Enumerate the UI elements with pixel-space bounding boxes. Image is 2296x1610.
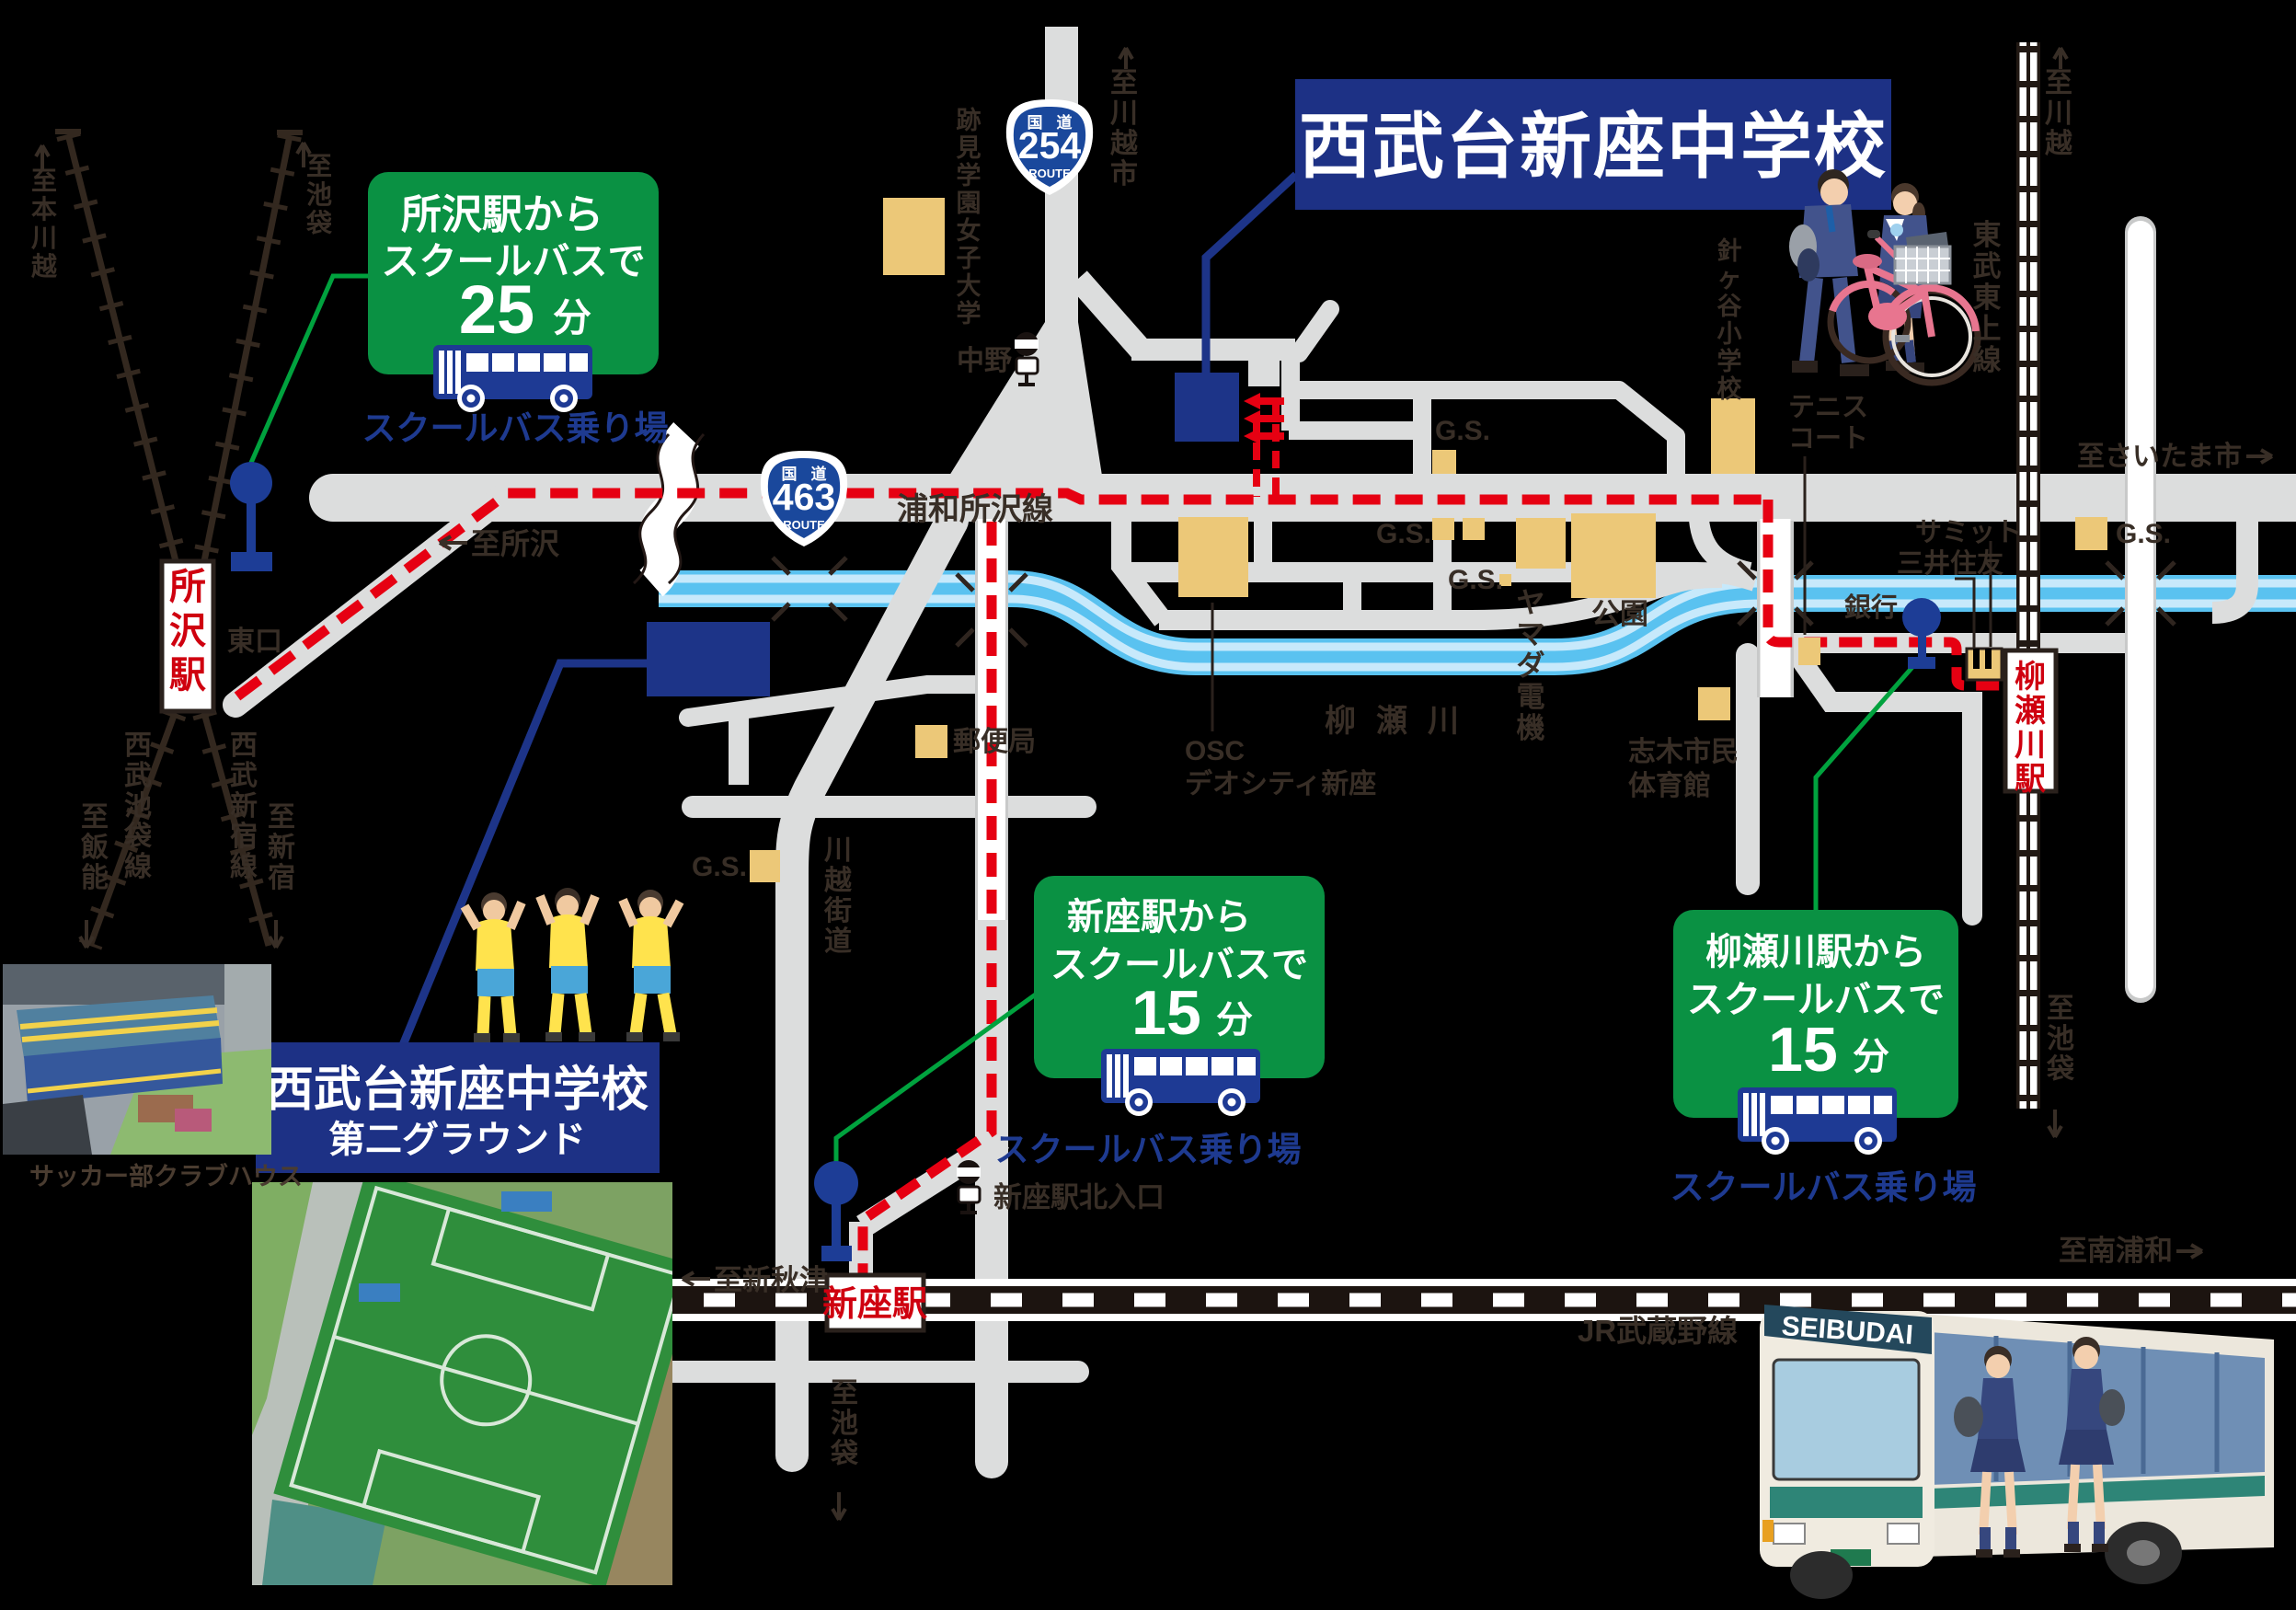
svg-text:志木市民: 志木市民	[1628, 736, 1739, 767]
svg-text:15: 15	[1131, 978, 1201, 1048]
svg-text:至さいたま市: 至さいたま市	[2077, 441, 2242, 472]
svg-text:ROUTE: ROUTE	[1028, 167, 1071, 180]
svg-text:サミット: サミット	[1915, 518, 2022, 547]
svg-text:柳瀬川駅: 柳瀬川駅	[2015, 660, 2046, 797]
svg-text:G.S.: G.S.	[1448, 565, 1503, 595]
svg-text:ROUTE: ROUTE	[783, 518, 825, 532]
svg-text:至飯能: 至飯能	[81, 802, 109, 893]
svg-text:東口: 東口	[227, 627, 282, 657]
svg-text:至川越市: 至川越市	[1110, 68, 1139, 190]
svg-text:コート: コート	[1788, 424, 1868, 454]
svg-text:至本川越: 至本川越	[31, 167, 58, 281]
svg-text:三井住友: 三井住友	[1897, 548, 2003, 579]
svg-text:サッカー部クラブハウス: サッカー部クラブハウス	[29, 1162, 303, 1190]
svg-text:至池袋: 至池袋	[305, 152, 333, 237]
svg-text:スクールバス乗り場: スクールバス乗り場	[1670, 1168, 1977, 1206]
svg-text:15: 15	[1768, 1015, 1838, 1085]
svg-text:針ヶ谷小学校: 針ヶ谷小学校	[1717, 236, 1743, 403]
svg-text:公園: 公園	[1591, 598, 1648, 630]
svg-text:デオシティ新座: デオシティ新座	[1185, 768, 1376, 799]
svg-text:ヤマダ電機: ヤマダ電機	[1517, 587, 1545, 744]
svg-text:分: 分	[553, 296, 591, 339]
svg-text:所沢駅から: 所沢駅から	[401, 192, 603, 237]
svg-text:スクールバス乗り場: スクールバス乗り場	[995, 1131, 1302, 1168]
svg-text:郵便局: 郵便局	[953, 727, 1036, 757]
svg-text:所沢駅: 所沢駅	[169, 567, 207, 696]
svg-text:至池袋: 至池袋	[830, 1378, 858, 1469]
svg-text:跡見学園女子大学: 跡見学園女子大学	[957, 107, 982, 328]
svg-text:第二グラウンド: 第二グラウンド	[328, 1120, 586, 1160]
svg-text:254: 254	[1018, 124, 1082, 167]
svg-text:分: 分	[1216, 1000, 1253, 1041]
svg-text:新座駅北入口: 新座駅北入口	[993, 1181, 1165, 1213]
svg-text:25: 25	[459, 271, 534, 348]
svg-text:柳瀬川: 柳瀬川	[1325, 704, 1479, 739]
svg-text:浦和所沢線: 浦和所沢線	[897, 492, 1053, 527]
svg-text:銀行: 銀行	[1844, 592, 1898, 623]
svg-text:新座駅: 新座駅	[822, 1285, 927, 1324]
svg-text:JR武蔵野線: JR武蔵野線	[1578, 1314, 1738, 1348]
svg-text:東武東上線: 東武東上線	[1973, 219, 2002, 376]
svg-text:G.S.: G.S.	[692, 852, 747, 882]
svg-text:柳瀬川駅から: 柳瀬川駅から	[1705, 932, 1926, 972]
svg-text:G.S.: G.S.	[1376, 519, 1431, 549]
svg-text:川越街道: 川越街道	[823, 835, 853, 957]
svg-text:至新宿: 至新宿	[268, 802, 295, 893]
svg-text:新座駅から: 新座駅から	[1067, 897, 1251, 937]
svg-text:G.S.: G.S.	[1435, 416, 1490, 446]
svg-text:中野: 中野	[957, 346, 1012, 376]
svg-text:至所沢: 至所沢	[471, 527, 560, 560]
svg-text:西武池袋線: 西武池袋線	[123, 730, 152, 882]
svg-text:テニス: テニス	[1788, 393, 1868, 422]
svg-text:体育館: 体育館	[1628, 770, 1711, 801]
svg-text:OSC: OSC	[1185, 736, 1245, 766]
svg-text:西武台新座中学校: 西武台新座中学校	[266, 1064, 649, 1117]
svg-text:G.S.: G.S.	[2116, 519, 2171, 549]
svg-text:至川越: 至川越	[2045, 68, 2073, 159]
svg-text:463: 463	[773, 476, 835, 518]
svg-text:西武台新座中学校: 西武台新座中学校	[1299, 106, 1888, 187]
svg-text:分: 分	[1853, 1037, 1889, 1077]
svg-text:スクールバス乗り場: スクールバス乗り場	[362, 409, 669, 447]
svg-text:西武新宿線: 西武新宿線	[230, 730, 258, 882]
svg-text:至南浦和: 至南浦和	[2059, 1235, 2173, 1267]
svg-text:至新秋津: 至新秋津	[714, 1264, 828, 1296]
svg-text:至池袋: 至池袋	[2046, 994, 2074, 1085]
